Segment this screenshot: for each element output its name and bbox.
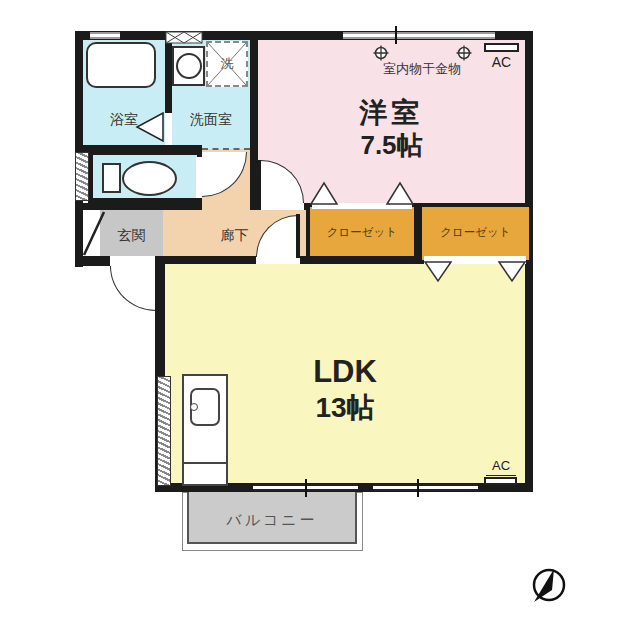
wall-bath-washroom (165, 31, 172, 113)
ac-top-label: AC (484, 54, 519, 70)
compass-icon (534, 569, 564, 602)
closet-right-label: クローゼット (420, 226, 531, 239)
kitchen-counter-divider (184, 462, 226, 464)
opening-closet-right (424, 256, 526, 264)
washroom-threshold-dashed (202, 148, 250, 150)
laundry-hardware-label: 室内物干金物 (340, 62, 504, 77)
window-bathroom-top (90, 32, 120, 39)
opening-western-door (261, 203, 304, 210)
ac-unit-bottom-box (484, 477, 517, 485)
door-arc-entrance (110, 266, 156, 311)
vanity-sink (176, 53, 202, 79)
opening-ldk-door (256, 256, 300, 264)
ac-unit-top-box (484, 43, 519, 52)
wall-genkan-bottom (75, 256, 110, 266)
toilet-bowl (122, 161, 177, 196)
washer-label: 洗 (206, 57, 248, 72)
opening-closet-left (312, 203, 412, 209)
western-room-label: 洋室 (258, 97, 525, 129)
ldk-size: 13帖 (165, 392, 525, 424)
ac-bottom-label: AC (486, 459, 516, 476)
corridor-label: 廊下 (163, 227, 306, 243)
ldk-label: LDK (165, 354, 525, 390)
door-leaf-western (257, 160, 261, 205)
window-toilet-west (75, 152, 89, 201)
floor-plan: 浴室 洗面室 洗 洋室 7.5帖 室内物干金物 AC 玄関 廊下 クローゼット … (0, 0, 640, 640)
window-ldk-south-1 (253, 484, 358, 491)
closet-left-label: クローゼット (308, 226, 416, 239)
bathroom-label: 浴室 (83, 111, 165, 127)
window-ldk-south-2 (373, 484, 478, 491)
western-room-size: 7.5帖 (258, 131, 525, 161)
toilet-door (196, 157, 202, 198)
bathtub (86, 42, 156, 88)
opening-washroom (202, 203, 250, 210)
toilet-tank (102, 163, 121, 193)
washroom-label: 洗面室 (172, 111, 250, 127)
genkan-label: 玄関 (100, 227, 163, 243)
balcony-label: バルコニー (188, 511, 356, 528)
window-western-top (343, 32, 495, 39)
